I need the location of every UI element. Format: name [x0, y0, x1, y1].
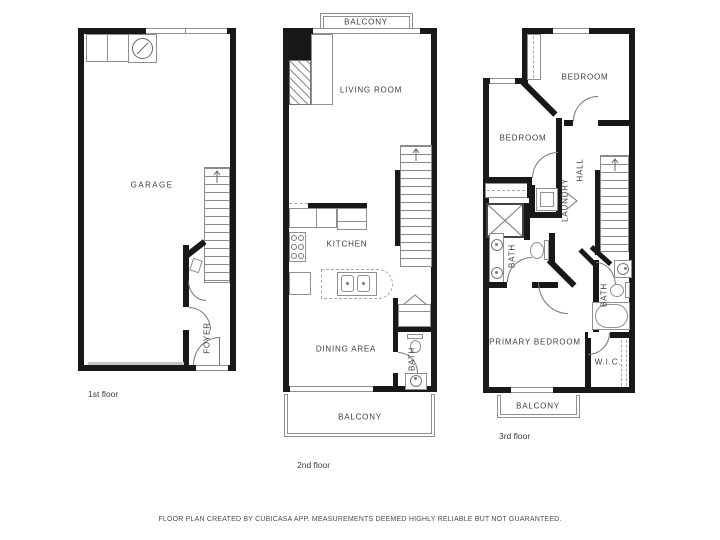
- faucet-icon: [495, 271, 498, 274]
- burner-icon: [298, 244, 304, 250]
- washer-icon-inner: [540, 192, 554, 207]
- floor-label-2nd: 2nd floor: [297, 460, 330, 470]
- drain-icon: [362, 282, 365, 285]
- water-heater-icon: [131, 37, 154, 60]
- burner-icon: [291, 244, 297, 250]
- toilet-tank: [407, 334, 423, 339]
- kitchen-counter: [289, 272, 311, 295]
- stairs-up-arrow: [212, 169, 222, 183]
- counter-divider: [337, 221, 367, 222]
- bedroom-left-label: BEDROOM: [500, 134, 547, 143]
- cabinet: [107, 34, 129, 62]
- toilet-bowl: [610, 284, 624, 297]
- interior-wall: [598, 120, 635, 126]
- exterior-wall: [483, 387, 635, 393]
- bath-wall: [393, 373, 398, 392]
- closet-rod: [533, 36, 534, 78]
- door-arc: [532, 152, 558, 178]
- wic-label: W.I.C.: [595, 358, 622, 367]
- shower-x-icon: [488, 205, 522, 236]
- burner-icon: [298, 253, 304, 259]
- closet-rod: [487, 190, 530, 191]
- balcony-door: [535, 387, 553, 393]
- floor-plan-page: GARAGE FOYER 1st floor BALCONY: [0, 0, 720, 540]
- window: [553, 28, 589, 34]
- bath-label: BATH: [408, 347, 417, 371]
- window: [490, 78, 515, 84]
- closet-shelf: [398, 304, 431, 327]
- hall-label: HALL: [576, 158, 585, 181]
- window-sill: [88, 362, 184, 365]
- interior-wall: [524, 203, 530, 240]
- floor-plan-1st: GARAGE FOYER: [78, 28, 236, 371]
- door-arc: [588, 333, 610, 355]
- toilet-tank: [625, 282, 630, 298]
- drain-icon: [346, 282, 349, 285]
- toilet-bowl: [530, 242, 544, 259]
- exterior-wall: [629, 28, 635, 393]
- garage-door-divider: [185, 28, 186, 34]
- exterior-wall-diagonal: [521, 80, 558, 117]
- sink-icon: [617, 263, 629, 275]
- burner-icon: [291, 253, 297, 259]
- balcony-label: BALCONY: [516, 402, 560, 411]
- door-leaf: [219, 337, 220, 365]
- closet-rod: [626, 340, 627, 386]
- bedroom-top-label: BEDROOM: [562, 73, 609, 82]
- hatched-area: [289, 60, 311, 105]
- door-arc: [573, 96, 598, 121]
- balcony-door: [310, 386, 332, 392]
- stairs-up-arrow: [610, 157, 620, 171]
- interior-wall: [489, 282, 507, 288]
- cabinet: [86, 34, 108, 62]
- footer-disclaimer: FLOOR PLAN CREATED BY CUBICASA APP. MEAS…: [0, 516, 720, 523]
- window: [511, 387, 535, 393]
- door-arc: [538, 282, 568, 314]
- primary-bedroom-label: PRIMARY BEDROOM: [489, 338, 581, 347]
- garage-door: [146, 28, 227, 34]
- bath-right-label: BATH: [600, 283, 609, 307]
- stairs-to-2nd-floor: [204, 167, 230, 283]
- floor-label-3rd: 3rd floor: [499, 431, 530, 441]
- entry-door-opening: [196, 365, 228, 371]
- faucet-icon: [624, 267, 627, 270]
- balcony-top-label: BALCONY: [342, 18, 390, 27]
- laundry-wall: [529, 212, 558, 218]
- burner-icon: [298, 235, 304, 241]
- living-room-label: LIVING ROOM: [340, 86, 402, 95]
- closet: [527, 34, 541, 80]
- kitchen-label: KITCHEN: [327, 240, 368, 249]
- dining-area-label: DINING AREA: [316, 345, 376, 354]
- faucet-icon: [414, 377, 417, 380]
- window: [394, 28, 420, 34]
- counter-divider: [316, 208, 317, 228]
- interior-wall: [564, 120, 573, 126]
- kitchen-counter: [289, 208, 337, 228]
- refrigerator: [337, 208, 367, 230]
- chevron-door-icon: [566, 192, 578, 210]
- window: [332, 386, 373, 392]
- floor-plan-3rd: BEDROOM BEDROOM HALL LAUNDRY: [478, 20, 640, 440]
- floor-label-1st: 1st floor: [88, 389, 118, 399]
- stairs-up-arrow: [411, 147, 421, 161]
- floor-plan-2nd: BALCONY LIVING ROOM: [283, 13, 437, 441]
- window: [290, 386, 310, 392]
- shelf-line: [398, 311, 431, 312]
- bath-wall: [398, 327, 435, 332]
- stairs-to-3rd-floor: [400, 145, 432, 267]
- foyer-label: FOYER: [203, 322, 212, 354]
- garage-label: GARAGE: [131, 181, 174, 190]
- bathtub-inner: [595, 304, 628, 328]
- balcony-bottom-label: BALCONY: [338, 413, 382, 422]
- faucet-icon: [495, 243, 498, 246]
- balcony-door: [337, 28, 394, 34]
- chase: [311, 34, 333, 105]
- burner-icon: [291, 235, 297, 241]
- fireplace-mass: [289, 34, 311, 60]
- counter-dashed: [289, 203, 308, 206]
